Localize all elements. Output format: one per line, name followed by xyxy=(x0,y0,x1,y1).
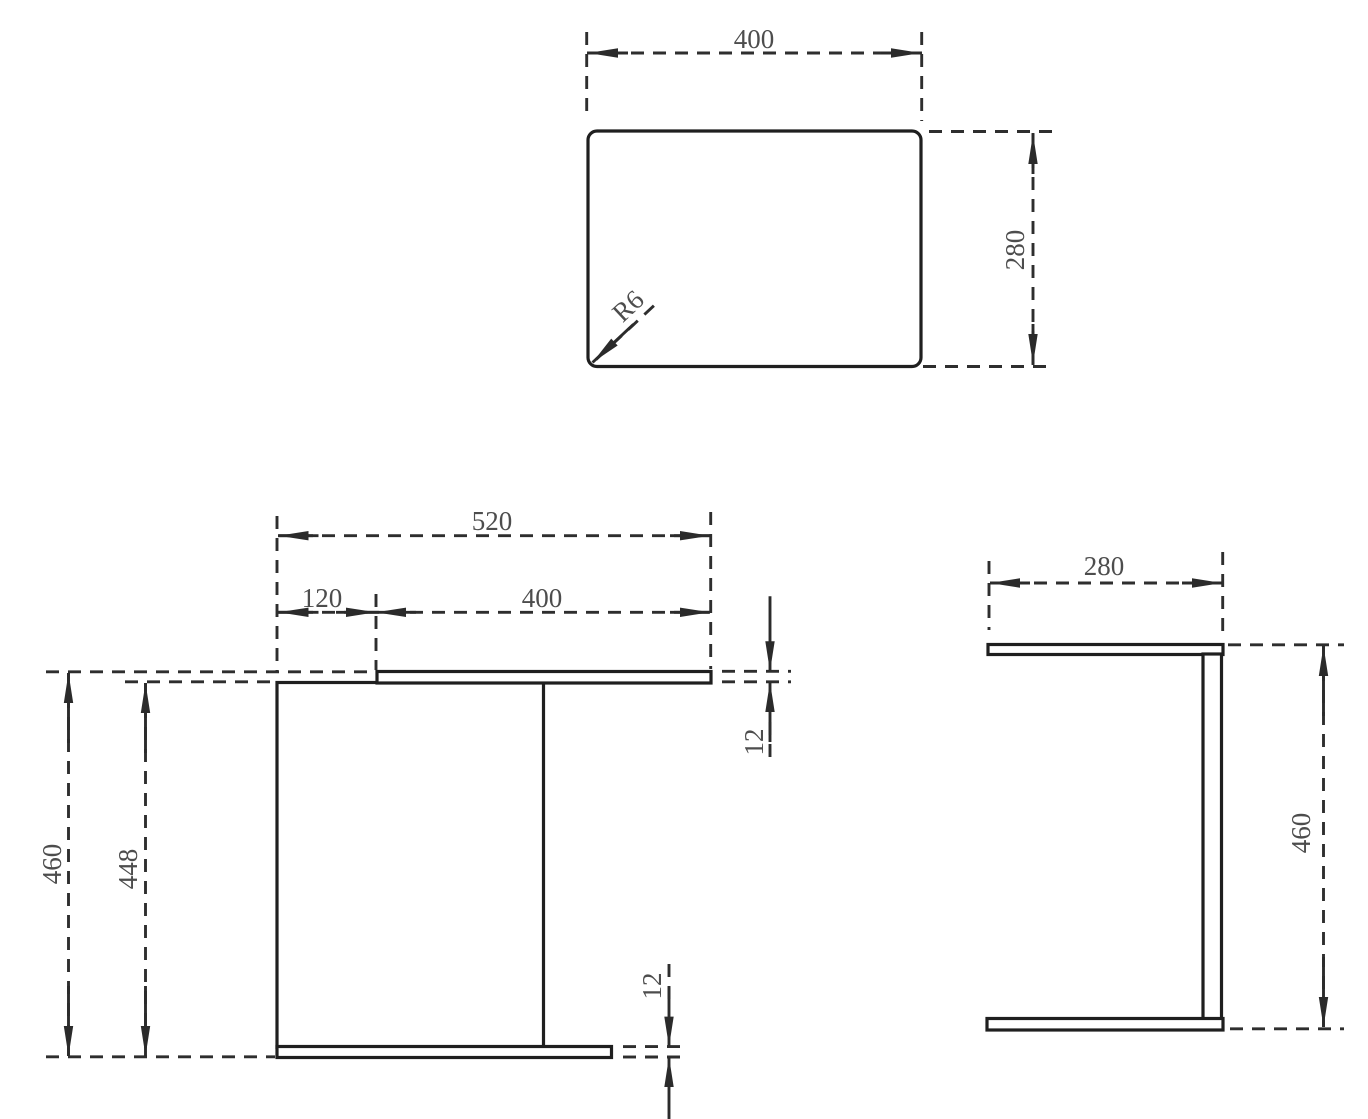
front-view: 5201204004604481212 xyxy=(37,506,791,1119)
depth-arrow-left xyxy=(990,578,1030,587)
bottom-thickness-label: 12 xyxy=(637,973,667,1000)
width-arrow-left xyxy=(588,48,628,57)
bottom-thickness-arrow-up xyxy=(664,1057,673,1119)
drawing-page: 400280R65201204004604481212280460 xyxy=(0,0,1368,1119)
height-arrow-top xyxy=(64,673,73,743)
inner-height-label: 448 xyxy=(113,849,143,890)
offset-label: 120 xyxy=(302,583,343,613)
depth-arrow-top xyxy=(1028,134,1037,174)
depth-label: 280 xyxy=(1000,230,1030,271)
back-panel-outline xyxy=(1203,654,1222,1019)
technical-drawing: 400280R65201204004604481212280460 xyxy=(0,0,1368,1119)
inner-height-arrow-top xyxy=(141,683,150,753)
height-label: 460 xyxy=(1286,813,1316,854)
top-plate-outline xyxy=(377,672,711,684)
side-panel-outline xyxy=(277,683,544,1048)
height-arrow-top xyxy=(1319,646,1328,716)
bottom-plate-outline xyxy=(987,1019,1223,1031)
inner-height-arrow-bottom xyxy=(141,986,150,1056)
depth-arrow-right xyxy=(1182,578,1222,587)
tabletop-outline xyxy=(588,131,921,367)
total-width-arrow-left xyxy=(279,531,319,540)
width-label: 400 xyxy=(734,24,775,54)
top-thickness-label: 12 xyxy=(739,729,769,756)
width-arrow-right xyxy=(881,48,921,57)
depth-label: 280 xyxy=(1084,551,1125,581)
topwidth-arrow-left xyxy=(376,608,416,617)
top-plate-outline xyxy=(988,645,1223,655)
total-width-arrow-right xyxy=(670,531,710,540)
topwidth-arrow-right xyxy=(670,608,710,617)
bottom-plate-outline xyxy=(277,1047,612,1058)
top-thickness-arrow-down xyxy=(765,596,774,671)
height-arrow-bottom xyxy=(1319,957,1328,1027)
total-width-label: 520 xyxy=(472,506,513,536)
side-view: 280460 xyxy=(987,551,1344,1030)
height-label: 460 xyxy=(37,844,67,885)
height-arrow-bottom xyxy=(64,986,73,1056)
topwidth-label: 400 xyxy=(522,583,563,613)
depth-arrow-bottom xyxy=(1028,324,1037,364)
top-view: 400280R6 xyxy=(587,24,1053,367)
